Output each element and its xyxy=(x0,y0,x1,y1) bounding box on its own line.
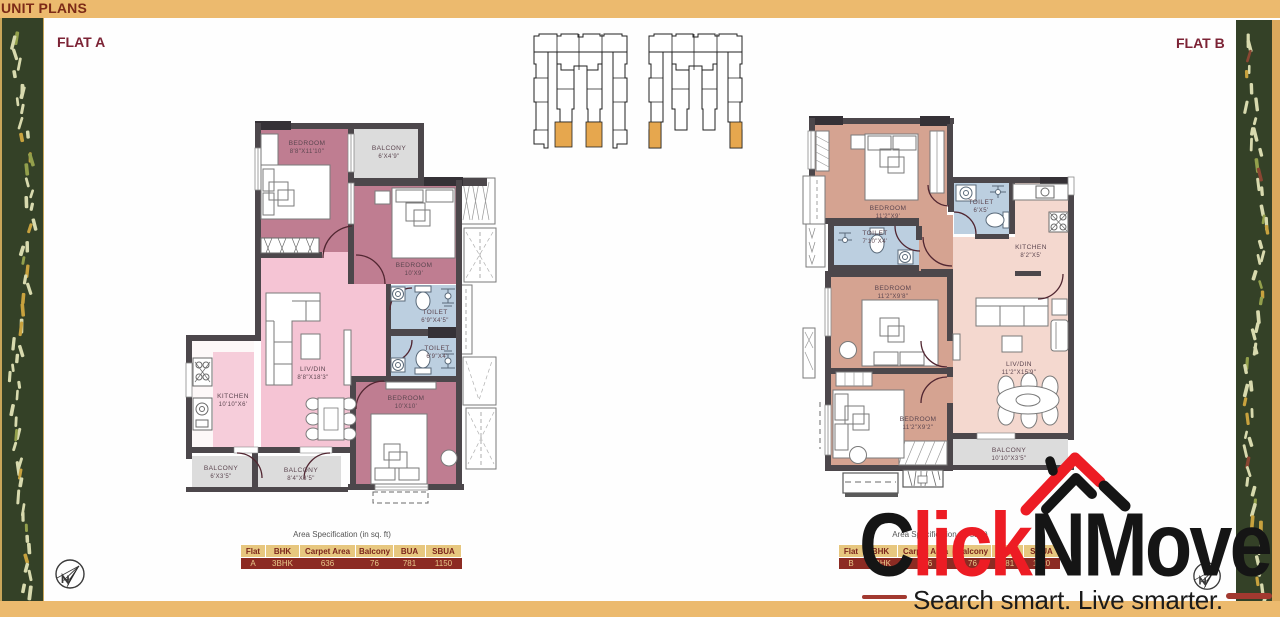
svg-text:BEDROOM: BEDROOM xyxy=(396,262,433,269)
svg-text:8'8"X18'3": 8'8"X18'3" xyxy=(297,375,328,381)
svg-text:LIV/DIN: LIV/DIN xyxy=(300,366,326,373)
svg-text:KITCHEN: KITCHEN xyxy=(217,393,249,400)
svg-text:TOILET: TOILET xyxy=(968,199,993,206)
svg-text:7'10"X4': 7'10"X4' xyxy=(863,239,888,245)
svg-text:BALCONY: BALCONY xyxy=(284,467,319,474)
svg-text:BALCONY: BALCONY xyxy=(372,145,407,152)
svg-text:BALCONY: BALCONY xyxy=(204,465,239,472)
svg-text:8'2"X5': 8'2"X5' xyxy=(1020,253,1041,259)
svg-text:6'X3'5": 6'X3'5" xyxy=(210,474,231,480)
svg-text:BEDROOM: BEDROOM xyxy=(875,285,912,292)
svg-text:11'2"X15'9": 11'2"X15'9" xyxy=(1002,370,1037,376)
svg-text:TOILET: TOILET xyxy=(422,309,447,316)
svg-text:8'4"X3'5": 8'4"X3'5" xyxy=(287,476,315,482)
svg-text:6'X4'9": 6'X4'9" xyxy=(378,154,399,160)
svg-text:LIV/DIN: LIV/DIN xyxy=(1006,361,1032,368)
svg-text:11'2"X9': 11'2"X9' xyxy=(876,214,901,220)
svg-text:BEDROOM: BEDROOM xyxy=(900,416,937,423)
svg-text:6'9"X4': 6'9"X4' xyxy=(426,354,447,360)
svg-text:11'2"X9'2": 11'2"X9'2" xyxy=(903,425,934,431)
svg-text:BEDROOM: BEDROOM xyxy=(289,140,326,147)
svg-text:8'8"X11'10": 8'8"X11'10" xyxy=(290,149,325,155)
svg-text:BEDROOM: BEDROOM xyxy=(870,205,907,212)
svg-text:10'10"X6': 10'10"X6' xyxy=(219,402,248,408)
svg-text:TOILET: TOILET xyxy=(862,230,887,237)
svg-text:KITCHEN: KITCHEN xyxy=(1015,244,1047,251)
svg-text:TOILET: TOILET xyxy=(424,345,449,352)
svg-text:6'9"X4'5": 6'9"X4'5" xyxy=(421,318,449,324)
svg-text:11'2"X9'8": 11'2"X9'8" xyxy=(878,294,909,300)
svg-text:10'X10': 10'X10' xyxy=(395,404,417,410)
svg-text:6'X5': 6'X5' xyxy=(974,208,989,214)
svg-text:10'X9': 10'X9' xyxy=(405,271,424,277)
svg-text:BEDROOM: BEDROOM xyxy=(388,395,425,402)
